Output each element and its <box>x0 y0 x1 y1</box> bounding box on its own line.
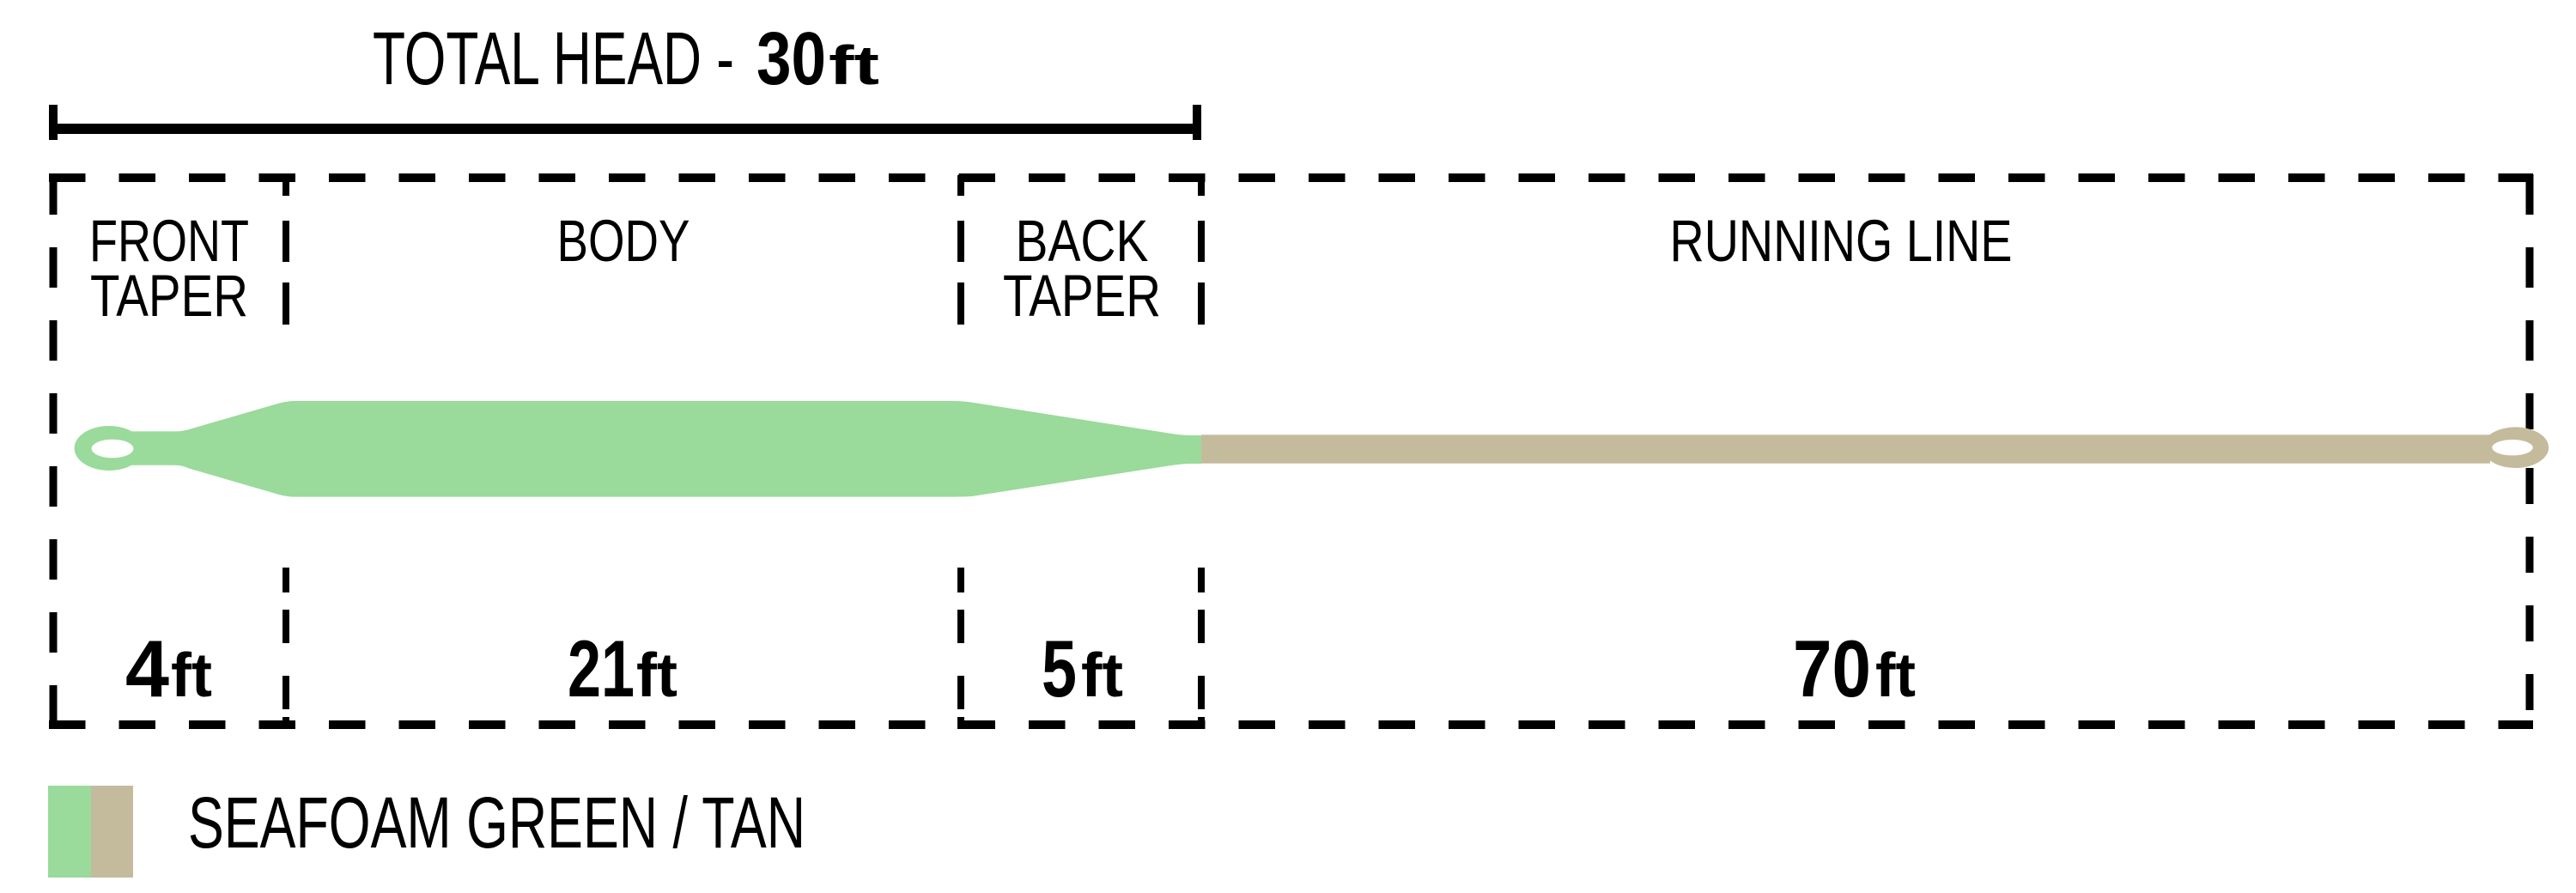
svg-text:70: 70 <box>1793 623 1871 714</box>
svg-text:TAPER: TAPER <box>90 263 248 329</box>
svg-text:ft: ft <box>636 641 677 710</box>
svg-text:4: 4 <box>125 623 169 714</box>
svg-text:SEAFOAM GREEN / TAN: SEAFOAM GREEN / TAN <box>188 782 805 863</box>
svg-text:ft: ft <box>171 641 212 710</box>
svg-text:ft: ft <box>1081 641 1123 710</box>
svg-text:RUNNING LINE: RUNNING LINE <box>1670 208 2013 274</box>
svg-text:ft: ft <box>1875 641 1916 710</box>
svg-text:TOTAL HEAD -: TOTAL HEAD - <box>373 17 734 100</box>
svg-text:21: 21 <box>568 623 635 714</box>
svg-text:BODY: BODY <box>557 208 690 274</box>
svg-text:5: 5 <box>1042 623 1077 714</box>
svg-text:ft: ft <box>829 34 879 96</box>
svg-text:30: 30 <box>756 17 826 100</box>
svg-text:TAPER: TAPER <box>1003 263 1161 329</box>
